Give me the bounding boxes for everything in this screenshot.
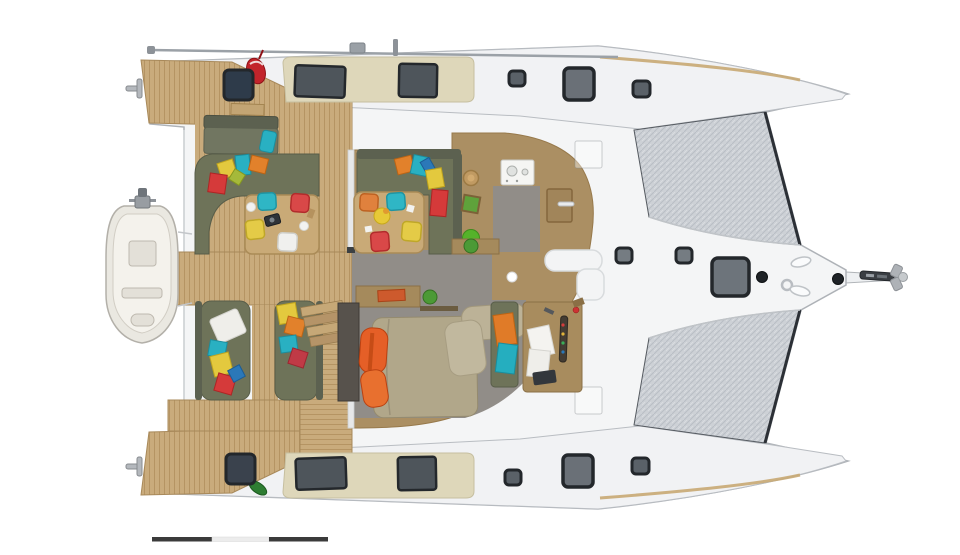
- desk-strip: [559, 316, 568, 362]
- bowsprit-mark-1: [866, 274, 874, 278]
- teak-lounge-walkway: [252, 305, 278, 400]
- pillow-teal-5: [495, 343, 517, 374]
- bow-cleat: [757, 272, 768, 283]
- stern-cleat-port-stem: [137, 79, 142, 98]
- roof-window-port-aft: [294, 65, 345, 98]
- outboard-motor: [135, 196, 150, 208]
- table-camera-lens: [270, 218, 275, 223]
- stbd-hull-hatch-large: [563, 455, 593, 487]
- pillow-orange-2: [284, 316, 306, 337]
- pillow-orange-4: [493, 313, 517, 346]
- desk-red-dot: [573, 307, 579, 313]
- foredeck-hatch-small-1: [616, 248, 632, 263]
- foredeck-hatch-small-2: [676, 248, 692, 263]
- stove-knob-1: [506, 180, 508, 182]
- table-plate-2: [300, 222, 309, 231]
- scale-bar-segment-dark-left: [152, 537, 212, 542]
- dinghy-seat: [122, 288, 162, 298]
- orange-book: [378, 289, 406, 301]
- outboard-motor-head: [138, 188, 147, 197]
- strip-dot-green: [561, 341, 564, 344]
- windlass: [833, 274, 844, 285]
- port-hull-hatch-small-fwd: [633, 81, 650, 97]
- stbd-hull-hatch-small-fwd: [632, 458, 649, 474]
- pillow-yellow-4: [425, 168, 444, 189]
- stbd-hull-hatch-small-aft: [505, 470, 521, 485]
- salon-stool-orange: [360, 194, 379, 212]
- pillow-red-1: [208, 173, 227, 194]
- door-handle: [558, 202, 574, 206]
- boom-stub: [393, 39, 398, 56]
- cockpit-stool-yellow: [245, 219, 265, 240]
- cockpit-stool-white: [278, 233, 298, 252]
- dinghy-console: [129, 241, 156, 266]
- table-plate-1: [247, 203, 256, 212]
- salon-stool-teal: [386, 192, 405, 210]
- deck-locker-outline-port: [575, 141, 602, 168]
- stove-knob-2: [516, 180, 518, 182]
- burner-small: [522, 169, 528, 175]
- cockpit-stool-red: [290, 193, 309, 212]
- strip-dot-yellow: [561, 332, 564, 335]
- cockpit-stool-teal: [258, 193, 277, 211]
- stern-cleat-stbd-stem: [137, 457, 142, 476]
- strip-dot-red: [561, 323, 564, 326]
- aft-deck-hatch-stbd: [226, 454, 255, 484]
- downlight: [507, 272, 517, 282]
- pillow-red-3: [430, 189, 448, 216]
- wardrobe: [338, 303, 359, 401]
- deck-plan-canvas: [0, 0, 960, 555]
- roof-window-stbd-fwd: [398, 457, 437, 491]
- teak-aft-platform: [168, 252, 352, 305]
- bowsprit-bar: [860, 271, 894, 281]
- port-hull-hatch-small-aft: [509, 71, 525, 86]
- shelf-plant: [464, 239, 478, 253]
- boom-fitting: [350, 43, 365, 53]
- roof-window-port-fwd: [399, 64, 438, 98]
- port-hull-hatch-large: [564, 68, 594, 100]
- console-plant: [423, 290, 437, 304]
- foredeck-hatch-large: [712, 258, 749, 296]
- scale-bar-segment-dark-right: [269, 537, 328, 542]
- galley-floor: [493, 186, 540, 252]
- bed-pillow-main: [443, 319, 487, 378]
- cockpit-side-board: [231, 103, 264, 115]
- salon-stool-red: [370, 231, 389, 251]
- anchor-roller: [899, 273, 908, 282]
- strip-dot-blue: [561, 350, 564, 353]
- salon-stool-yellow: [401, 221, 422, 242]
- cockpit-wall-upper: [348, 150, 354, 250]
- aft-deck-hatch-port: [224, 70, 253, 100]
- fruit: [383, 208, 389, 214]
- companionway-step-lower: [577, 269, 604, 300]
- scale-bar-segment-light: [212, 537, 269, 542]
- napkin-2: [365, 225, 373, 232]
- companionway-step-upper: [545, 250, 602, 271]
- burner-large: [507, 166, 517, 176]
- plant-cube: [462, 195, 481, 214]
- galley-round-stool-top: [468, 175, 475, 182]
- roof-window-stbd-aft: [295, 457, 346, 490]
- lounge-bench-left-back: [195, 301, 202, 400]
- console-ledge: [420, 306, 458, 311]
- dinghy-bow-locker: [131, 314, 154, 326]
- boom-end-fitting: [147, 46, 155, 54]
